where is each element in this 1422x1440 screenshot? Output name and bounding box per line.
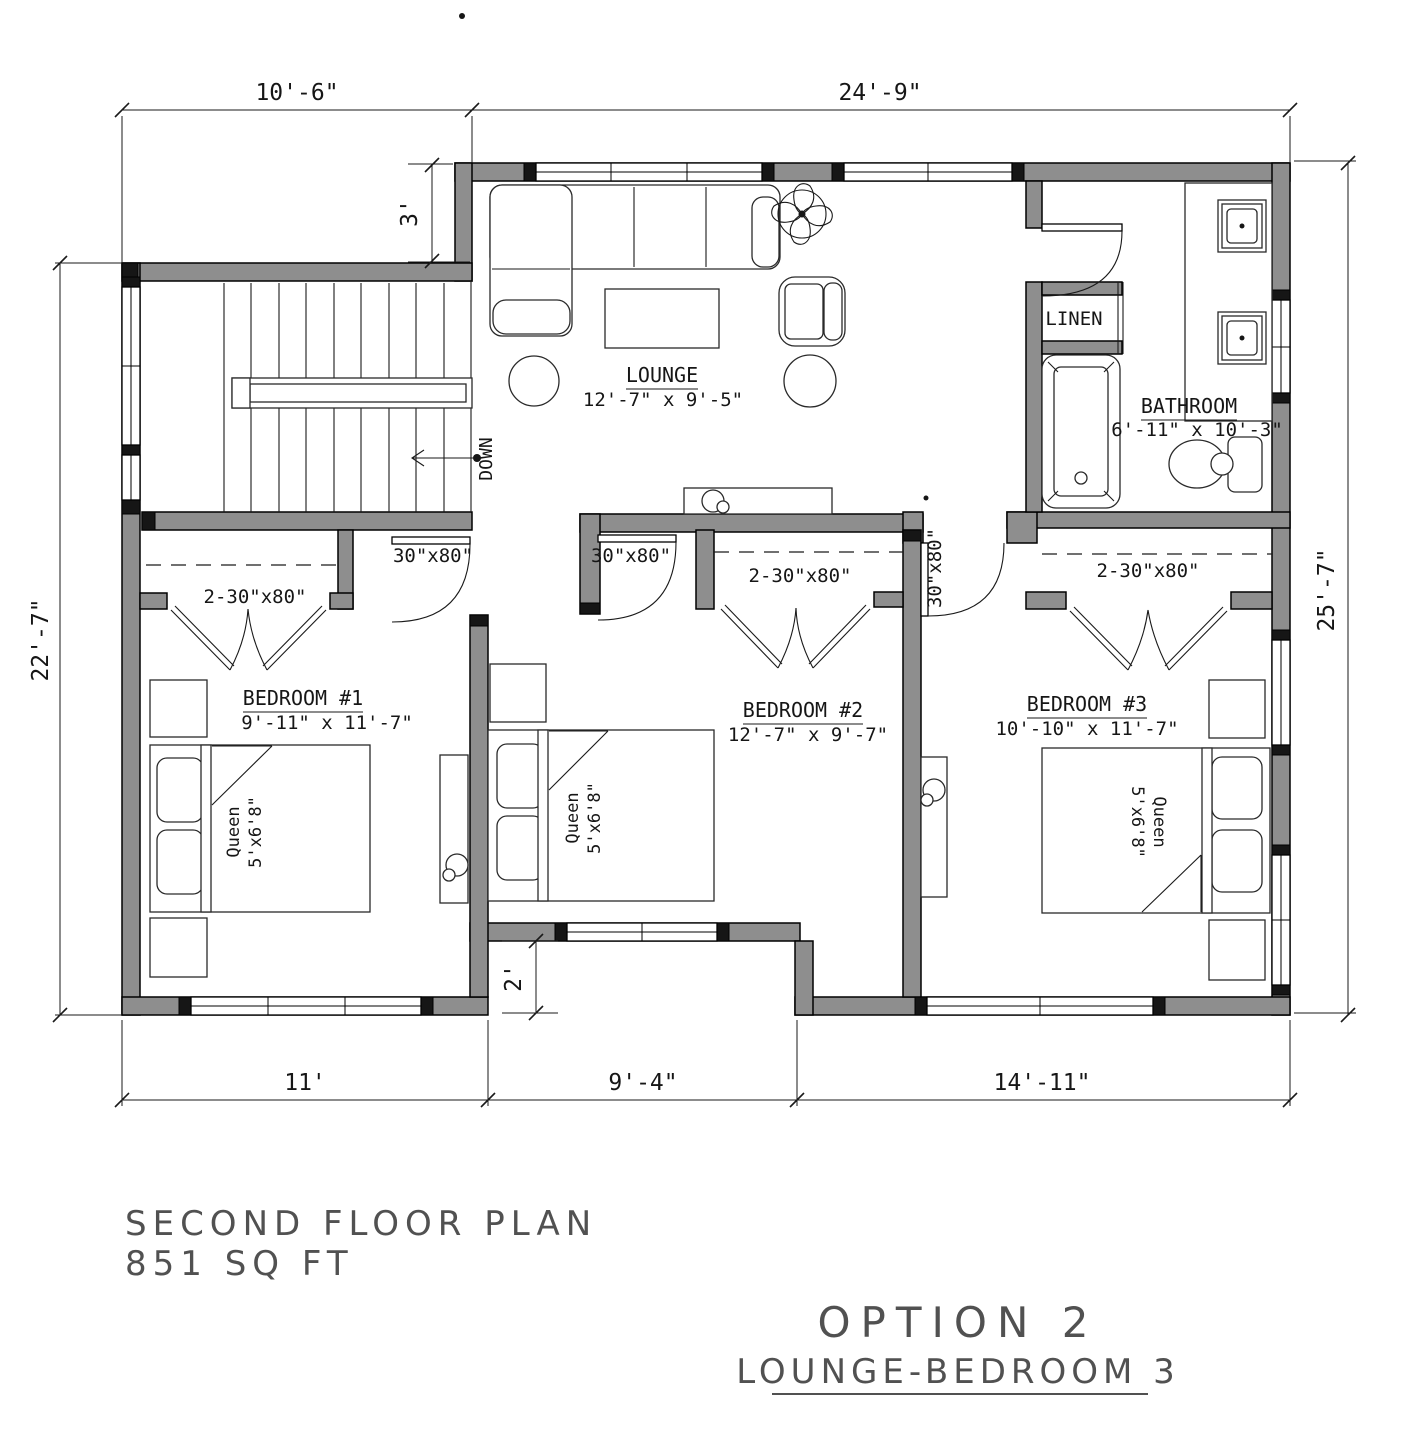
armchair xyxy=(779,277,845,346)
sink-icon xyxy=(1218,312,1266,364)
dim-top-right: 24'-9" xyxy=(838,80,921,106)
wall-linen-bottom xyxy=(1042,341,1122,354)
cap xyxy=(122,500,140,514)
linen-label: LINEN xyxy=(1045,308,1102,330)
bathroom-dims: 6'-11" x 10'-3" xyxy=(1111,419,1283,441)
door3-size-label: 30"x80" xyxy=(924,528,946,608)
plot-dot xyxy=(924,496,929,501)
cap xyxy=(524,163,536,181)
closet3-size-label: 2-30"x80" xyxy=(1097,560,1200,582)
wall-bed1-bed2 xyxy=(470,615,488,997)
jamb-closet1-west xyxy=(140,593,167,609)
window-bed3-upper xyxy=(1272,640,1290,745)
cap xyxy=(915,997,927,1015)
dim-bottom-right: 14'-11" xyxy=(994,1070,1091,1096)
stairs-down-label: DOWN xyxy=(476,437,497,480)
floor-plan-drawing: DOWN xyxy=(0,0,1422,1440)
side-table-right xyxy=(784,355,836,407)
stair-railing xyxy=(232,378,472,408)
wall-notch-jog xyxy=(795,941,813,1015)
bed3-size: 5'x6'8" xyxy=(1127,786,1147,858)
bed2-size: 5'x6'8" xyxy=(585,782,605,854)
cap xyxy=(1272,393,1290,403)
nightstand xyxy=(1209,680,1265,738)
cap xyxy=(1012,163,1024,181)
dim-right: 25'-7" xyxy=(1314,548,1340,631)
bedroom2-label: BEDROOM #2 xyxy=(743,698,863,722)
plan-area: 851 SQ FT xyxy=(125,1244,354,1284)
cap xyxy=(470,615,488,626)
closet2-size-label: 2-30"x80" xyxy=(749,565,852,587)
bathroom-label: BATHROOM xyxy=(1141,394,1237,418)
wall-bed2-bed3 xyxy=(903,530,921,997)
plot-dot xyxy=(459,13,465,19)
cap xyxy=(580,603,600,614)
lounge-label: LOUNGE xyxy=(626,363,698,387)
jamb-closet2-east xyxy=(874,592,903,607)
window-bed3-lower xyxy=(1272,855,1290,985)
dresser-bed1 xyxy=(440,755,468,903)
window-bathroom xyxy=(1272,300,1290,393)
window-stair-left xyxy=(122,287,140,500)
jamb-closet3-east xyxy=(1231,592,1272,609)
cap xyxy=(903,530,921,541)
window-bed3-bottom xyxy=(927,997,1153,1015)
wall-linen-top xyxy=(1042,282,1122,295)
coffee-table xyxy=(605,289,719,348)
cap xyxy=(122,445,140,455)
nightstand xyxy=(150,680,207,737)
wall-bath-south xyxy=(1007,512,1290,528)
cap xyxy=(717,923,729,941)
titles: SECOND FLOOR PLAN 851 SQ FT OPTION 2 LOU… xyxy=(125,1204,1180,1394)
nightstand xyxy=(1209,920,1265,980)
nightstand xyxy=(490,664,546,722)
stair-treads-upper xyxy=(251,283,444,378)
ceiling-fan-icon xyxy=(772,184,833,245)
bedroom2-dims: 12'-7" x 9'-7" xyxy=(728,724,888,746)
wall-lounge-south xyxy=(580,514,923,532)
cap xyxy=(421,997,433,1015)
jamb-closet1-east xyxy=(330,593,353,609)
door1-size-label: 30"x80" xyxy=(393,545,473,567)
door2-size-label: 30"x80" xyxy=(591,545,671,567)
wall-stair-top xyxy=(122,263,472,281)
dim-bottom-left: 11' xyxy=(284,1070,326,1096)
toilet-icon xyxy=(1169,437,1262,492)
floor-plan-page: DOWN xyxy=(0,0,1422,1440)
bedroom3-dims: 10'-10" x 11'-7" xyxy=(995,718,1178,740)
dim-bottom-mid: 9'-4" xyxy=(608,1070,677,1096)
cap xyxy=(1272,845,1290,855)
wall-bath-west-upper xyxy=(1026,181,1042,228)
cap xyxy=(122,277,140,287)
cap xyxy=(762,163,774,181)
bedroom3-label: BEDROOM #3 xyxy=(1027,692,1147,716)
bed3-type: Queen xyxy=(1149,796,1169,847)
bed2-type: Queen xyxy=(563,792,583,843)
window-bed1-bottom xyxy=(191,997,421,1015)
closet3-bifold-doors xyxy=(1070,607,1227,670)
cap xyxy=(179,997,191,1015)
cap xyxy=(1272,630,1290,640)
cap xyxy=(142,512,155,530)
bed1-size: 5'x6'8" xyxy=(246,796,266,868)
window-bed2-bottom xyxy=(567,923,717,941)
closet1-bifold-doors xyxy=(171,606,326,670)
plan-title: SECOND FLOOR PLAN xyxy=(125,1204,597,1244)
window-top-right xyxy=(844,163,1012,181)
cap xyxy=(555,923,567,941)
closet1-size-label: 2-30"x80" xyxy=(204,586,307,608)
wall-stair-bottom xyxy=(142,512,472,530)
dim-jog: 3' xyxy=(397,199,423,227)
staircase: DOWN xyxy=(224,281,497,512)
closet2-bifold-doors xyxy=(721,605,870,668)
option-subtitle: LOUNGE-BEDROOM 3 xyxy=(736,1352,1180,1392)
cap xyxy=(1153,997,1165,1015)
lounge-furniture xyxy=(490,184,845,514)
dresser-bed3 xyxy=(921,757,947,897)
bedroom1-label: BEDROOM #1 xyxy=(243,686,363,710)
jamb-closet3-west xyxy=(1026,592,1066,609)
window-lounge-top xyxy=(536,163,762,181)
nightstand xyxy=(150,918,207,977)
jamb-bed3-east xyxy=(1007,512,1037,543)
lounge-dims: 12'-7" x 9'-5" xyxy=(583,389,743,411)
bedroom1-dims: 9'-11" x 11'-7" xyxy=(241,712,413,734)
option-title: OPTION 2 xyxy=(818,1298,1099,1347)
sink-icon xyxy=(1218,200,1266,252)
cap xyxy=(1272,290,1290,300)
side-table-left xyxy=(509,356,559,406)
cap xyxy=(832,163,844,181)
bed1-type: Queen xyxy=(224,806,244,857)
dim-top-left: 10'-6" xyxy=(255,80,338,106)
cap xyxy=(1272,745,1290,755)
dim-notch: 2' xyxy=(501,964,527,992)
dim-left: 22'-7" xyxy=(28,598,54,681)
wall-bath-west-lower xyxy=(1026,282,1042,512)
cap xyxy=(1272,985,1290,995)
wall-closet2-west xyxy=(696,530,714,609)
bathtub-icon xyxy=(1042,355,1120,508)
console-desk xyxy=(684,488,832,514)
